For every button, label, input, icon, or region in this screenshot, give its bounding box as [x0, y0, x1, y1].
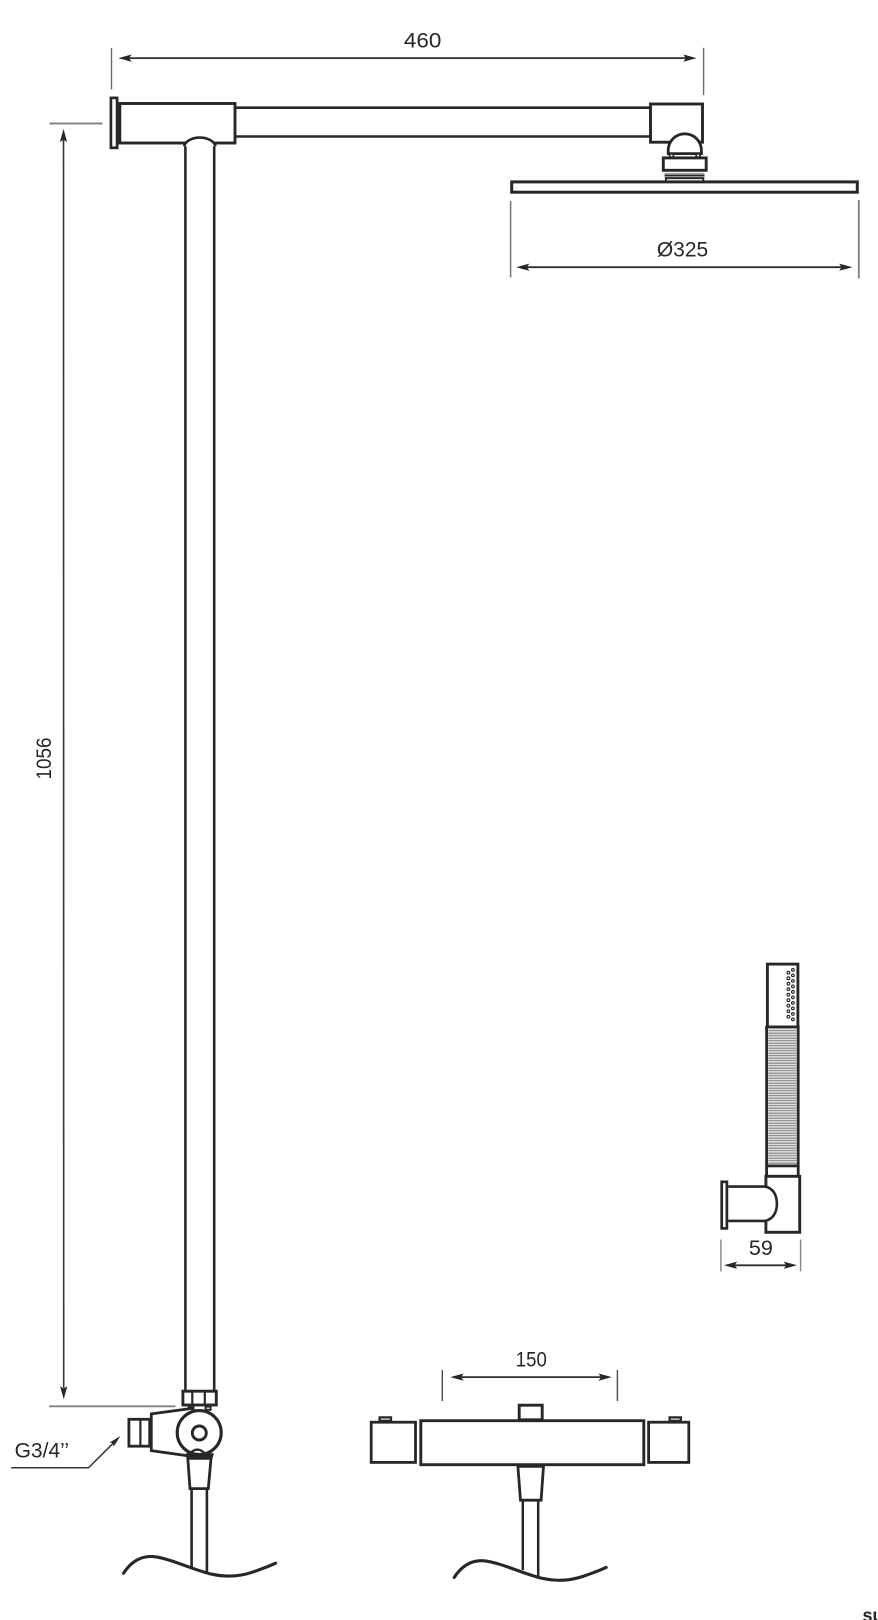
- svg-text:G3/4’’: G3/4’’: [15, 1440, 69, 1463]
- svg-text:460: 460: [404, 29, 442, 52]
- svg-text:1056: 1056: [33, 738, 56, 780]
- svg-text:59: 59: [749, 1237, 773, 1260]
- svg-text:Ø325: Ø325: [657, 238, 708, 261]
- svg-text:150: 150: [516, 1348, 547, 1371]
- svg-text:su: su: [863, 1606, 878, 1620]
